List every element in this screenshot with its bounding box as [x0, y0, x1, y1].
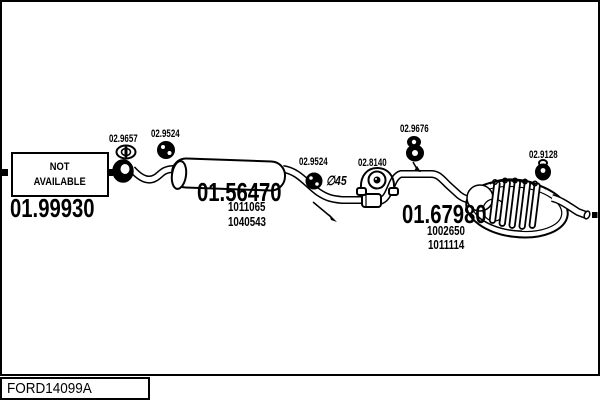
label-clamp-front: 02.9657 — [109, 133, 138, 146]
pipe-sleeve-drawing — [362, 194, 381, 207]
rubber-mount-mid-icon — [306, 173, 322, 189]
hanger-tail-icon — [536, 160, 551, 180]
front-pipe-drawing — [132, 169, 174, 180]
ref-number: 1011065 — [228, 200, 265, 215]
ref-number: 1002650 — [427, 224, 465, 239]
pipe-diameter-label: ∅45 — [326, 173, 347, 189]
not-available-box: NOT AVAILABLE — [11, 152, 109, 197]
label-clamp-mid: 02.8140 — [358, 157, 387, 170]
not-available-line2: AVAILABLE — [34, 175, 86, 190]
flange-drawing — [107, 160, 133, 182]
ref-number: 1040543 — [228, 215, 266, 230]
left-connector-square — [2, 169, 8, 176]
not-available-line1: NOT — [50, 160, 70, 175]
diagram-code: FORD14099A — [7, 380, 92, 397]
label-mount-mid: 02.9524 — [299, 156, 328, 169]
hanger-rear-icon — [407, 137, 424, 173]
label-hanger-tail: 02.9128 — [529, 149, 558, 162]
part-number-front: 01.99930 — [10, 194, 95, 223]
clamp-front-icon — [117, 146, 136, 159]
exhaust-parts-diagram: NOT AVAILABLE 01.99930 01.56470 01.67980… — [0, 0, 600, 400]
label-hanger-rear: 02.9676 — [400, 123, 429, 136]
rubber-mount-front-icon — [158, 142, 175, 159]
label-mount-front: 02.9524 — [151, 128, 180, 141]
middle-outlet-pipe-drawing — [283, 169, 366, 200]
ref-number: 1011114 — [428, 238, 464, 253]
sensor-stub-drawing — [313, 202, 337, 222]
